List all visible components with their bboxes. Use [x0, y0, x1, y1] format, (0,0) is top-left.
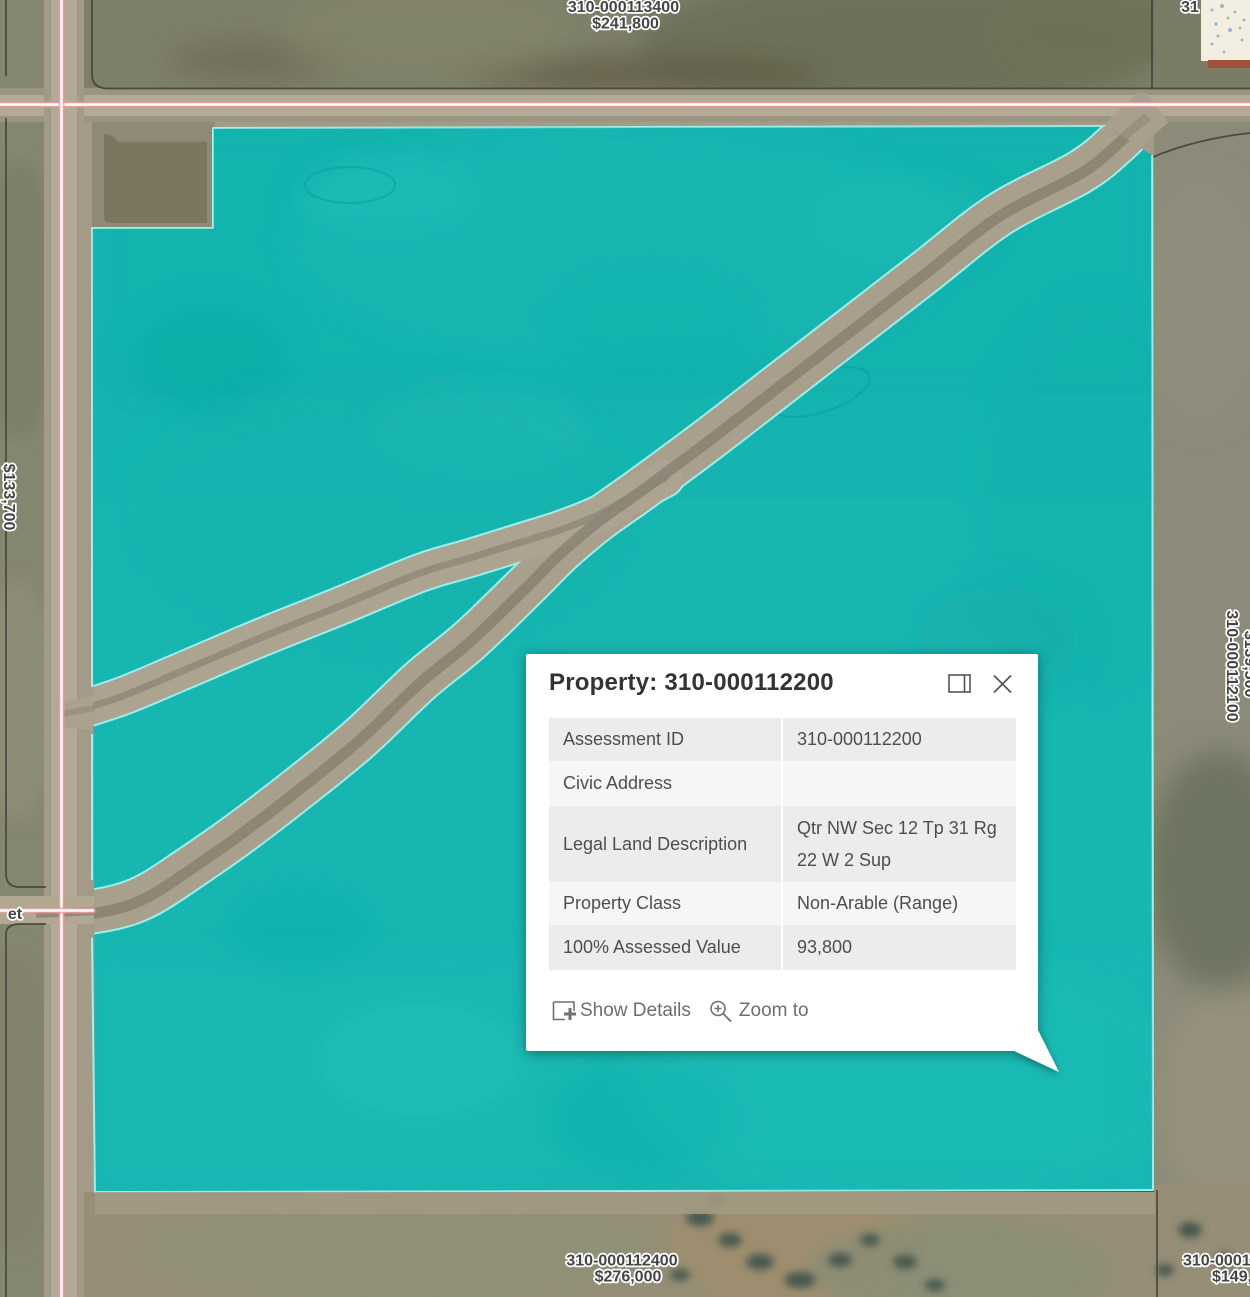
svg-text:$139,500: $139,500 — [1241, 631, 1250, 698]
svg-text:$149,000: $149,000 — [1212, 1269, 1250, 1286]
svg-text:310-000112500: 310-000112500 — [1183, 1253, 1250, 1270]
svg-text:310-000112100: 310-000112100 — [1223, 610, 1240, 721]
svg-text:$241,800: $241,800 — [592, 16, 659, 33]
svg-text:et: et — [8, 906, 23, 923]
svg-text:$276,000: $276,000 — [595, 1269, 662, 1286]
svg-text:310-000113400: 310-000113400 — [568, 0, 679, 16]
svg-text:$133,700: $133,700 — [0, 464, 17, 531]
svg-text:310-000112400: 310-000112400 — [566, 1253, 677, 1270]
svg-text:31: 31 — [1181, 0, 1199, 16]
